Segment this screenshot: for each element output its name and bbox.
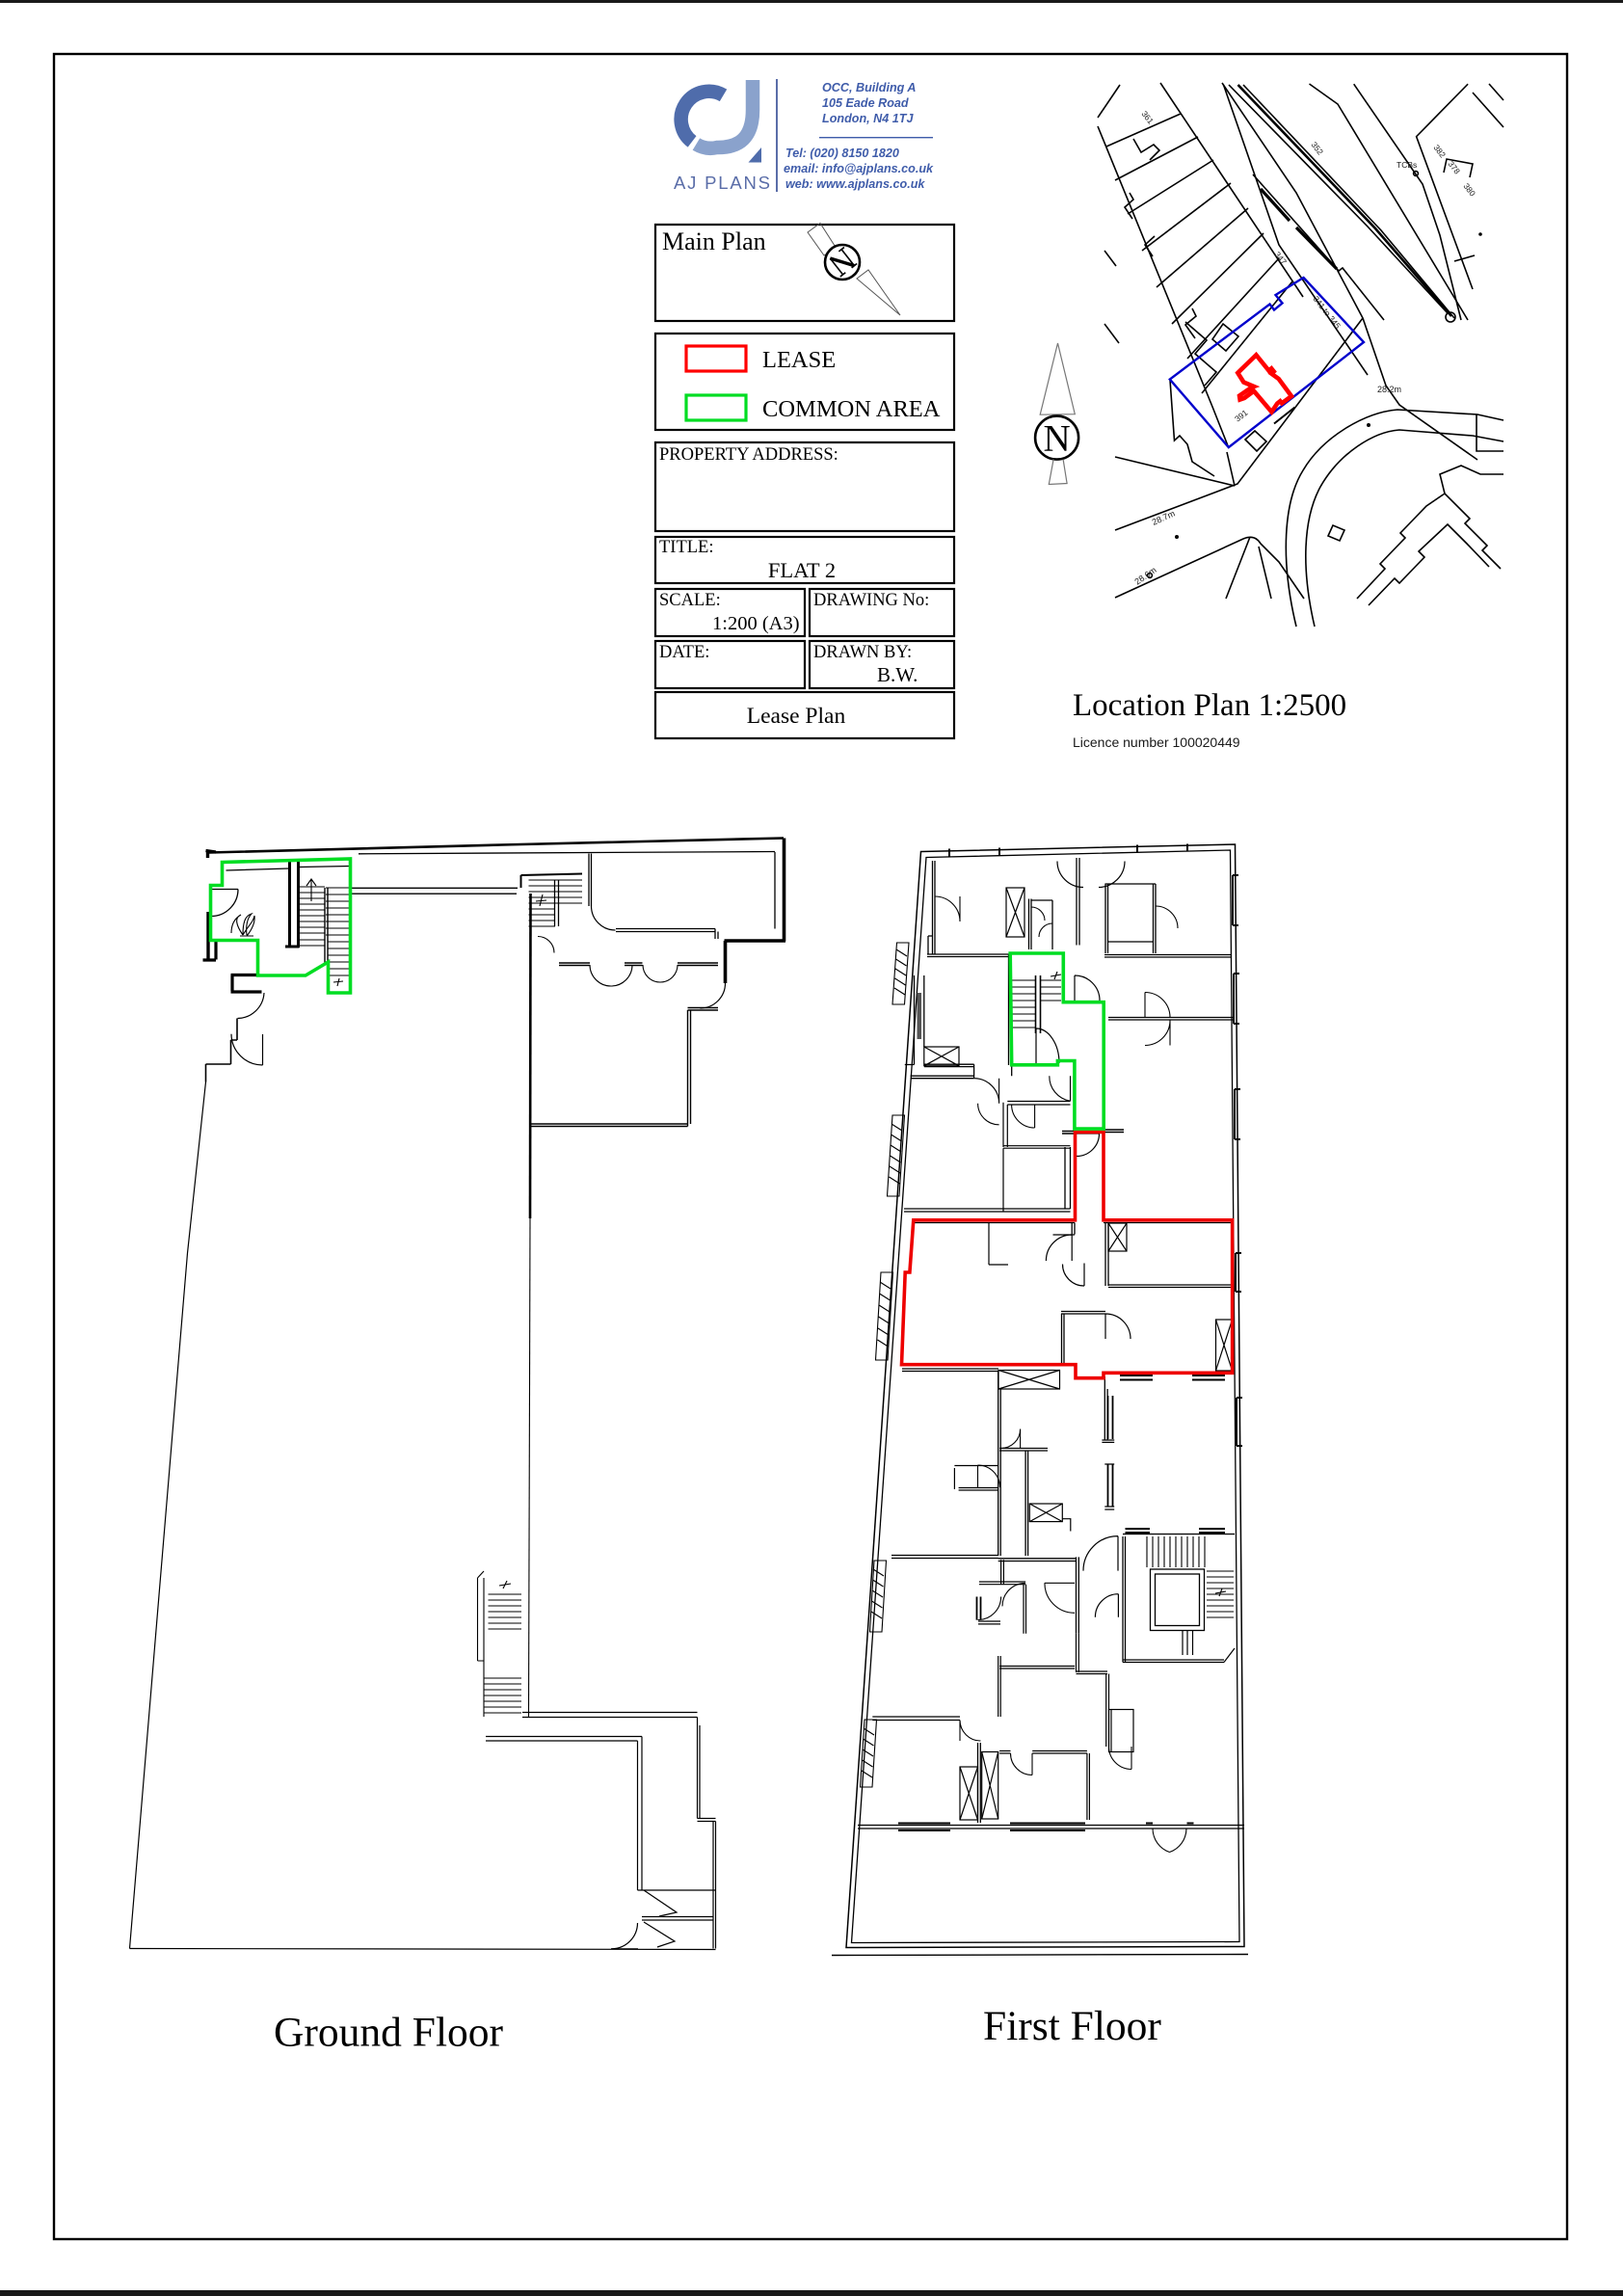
svg-text:DRAWING No:: DRAWING No: — [813, 591, 929, 610]
svg-text:First Floor: First Floor — [983, 2003, 1161, 2049]
svg-text:FLAT 2: FLAT 2 — [768, 558, 836, 582]
svg-text:Main Plan: Main Plan — [662, 227, 766, 255]
svg-text:COMMON AREA: COMMON AREA — [762, 396, 941, 422]
svg-text:SCALE:: SCALE: — [659, 591, 721, 610]
svg-text:web: www.ajplans.co.uk: web: www.ajplans.co.uk — [785, 177, 925, 191]
svg-text:DRAWN BY:: DRAWN BY: — [813, 643, 912, 662]
svg-text:1:200 (A3): 1:200 (A3) — [712, 613, 800, 634]
svg-text:London, N4 1TJ: London, N4 1TJ — [822, 112, 914, 125]
svg-text:AJ PLANS: AJ PLANS — [674, 173, 772, 193]
svg-text:PROPERTY ADDRESS:: PROPERTY ADDRESS: — [659, 445, 838, 465]
svg-text:LEASE: LEASE — [762, 347, 836, 373]
svg-text:28.2m: 28.2m — [1377, 385, 1401, 394]
svg-text:Lease Plan: Lease Plan — [747, 704, 846, 729]
svg-text:Tel: (020) 8150 1820: Tel: (020) 8150 1820 — [785, 147, 899, 160]
svg-text:TCBs: TCBs — [1397, 160, 1417, 170]
svg-text:DATE:: DATE: — [659, 643, 709, 662]
svg-text:N: N — [1044, 418, 1071, 460]
svg-text:email: info@ajplans.co.uk: email: info@ajplans.co.uk — [784, 162, 934, 175]
svg-text:B.W.: B.W. — [877, 663, 918, 686]
svg-text:OCC, Building A: OCC, Building A — [822, 81, 916, 94]
svg-text:Licence number 100020449: Licence number 100020449 — [1073, 734, 1240, 750]
svg-text:105 Eade Road: 105 Eade Road — [822, 96, 909, 110]
svg-text:Location Plan 1:2500: Location Plan 1:2500 — [1073, 688, 1346, 723]
svg-text:TITLE:: TITLE: — [659, 538, 714, 557]
svg-text:Ground Floor: Ground Floor — [274, 2010, 504, 2056]
